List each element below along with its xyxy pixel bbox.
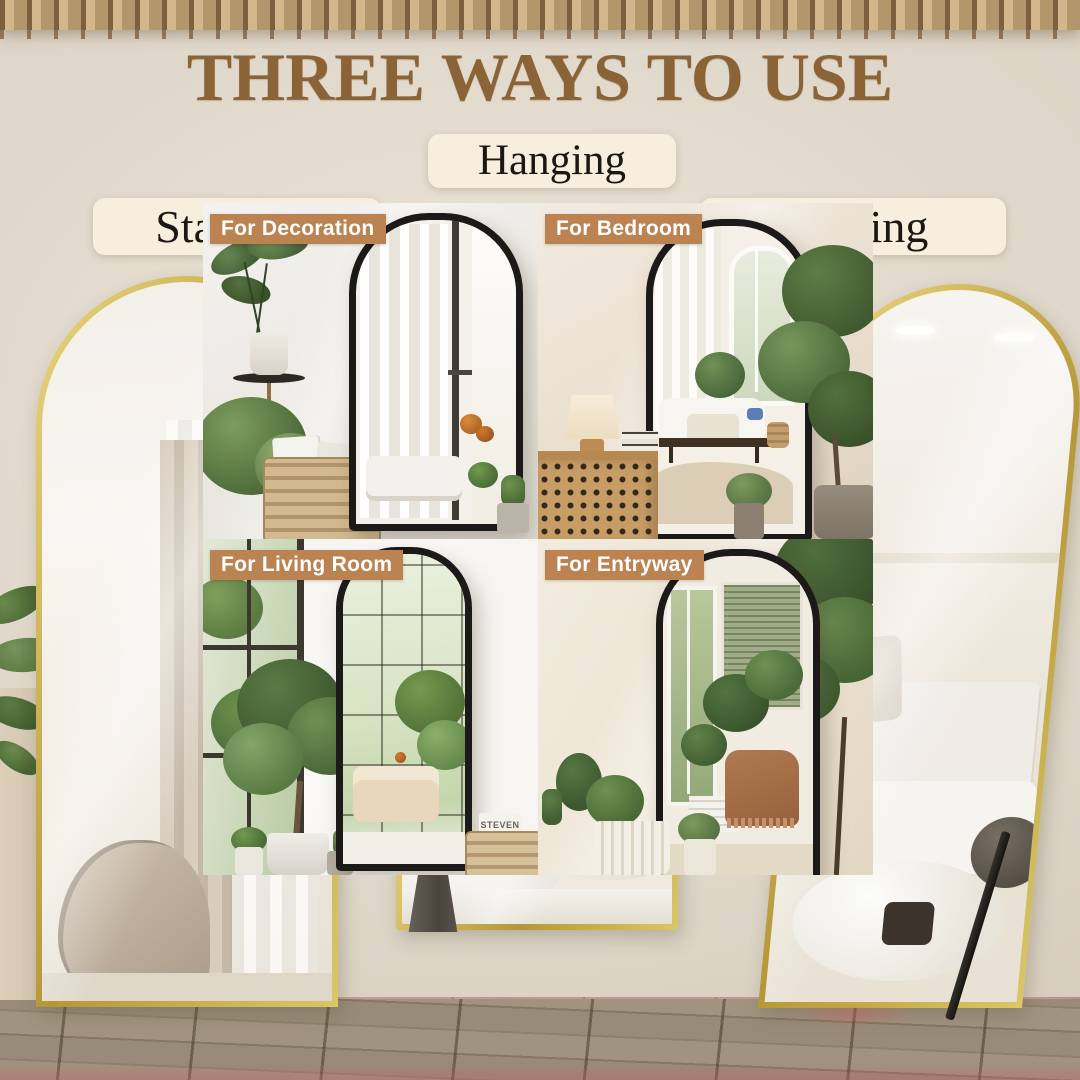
plant-pot (684, 839, 716, 875)
window-mullion (687, 590, 690, 794)
wood-slat-decoration (0, 0, 1080, 30)
tile-label: For Decoration (210, 214, 386, 244)
ottoman-reflection (353, 766, 439, 822)
tile-for-entryway: For Entryway (538, 539, 873, 875)
blanket-fringe (727, 818, 797, 828)
page-title: THREE WAYS TO USE (0, 42, 1080, 113)
bench-leg-reflection (669, 447, 673, 463)
tile-for-bedroom: For Bedroom (538, 203, 873, 539)
fluted-planter (594, 821, 670, 875)
tile-for-living-room: STEVEN For Living Room (203, 539, 538, 875)
tree-outside-window (203, 577, 263, 639)
book-stack (622, 431, 658, 451)
plant-foliage (223, 723, 303, 795)
palm-reflection (417, 720, 472, 770)
plant-foliage (586, 775, 644, 827)
plant-pot (814, 485, 873, 539)
plant-reflection (468, 462, 498, 488)
badge-hanging: Hanging (428, 134, 676, 188)
flower-reflection (476, 426, 494, 442)
tile-label: For Living Room (210, 550, 403, 580)
tile-for-decoration: For Decoration (203, 203, 538, 539)
wicker-basket (465, 831, 538, 875)
cactus-pot (497, 503, 529, 533)
throw-blanket-reflection (725, 750, 799, 826)
bench-reflection (366, 456, 462, 496)
rattan-nightstand (538, 451, 658, 539)
rug-tint (768, 1000, 938, 1030)
plant-pot (250, 331, 288, 375)
table-lamp-shade (564, 395, 620, 439)
product-infographic: THREE WAYS TO USE Standing Hanging Leani… (0, 0, 1080, 1080)
arched-mirror-graphic (349, 213, 523, 531)
floor-reflection (343, 832, 465, 864)
plant-reflection (695, 352, 745, 398)
plant-pot (235, 847, 263, 875)
rug-reflection (653, 462, 793, 524)
palm-reflection (681, 724, 727, 766)
plant-pot (734, 503, 764, 539)
palm-reflection (745, 650, 803, 700)
tile-label: For Bedroom (545, 214, 702, 244)
cactus-graphic (542, 789, 562, 825)
blue-pillow-reflection (747, 408, 763, 420)
round-basket-reflection (767, 422, 789, 448)
usage-photo-grid: For Decoration (203, 203, 873, 875)
fruit-reflection (395, 752, 406, 763)
tile-label: For Entryway (545, 550, 704, 580)
bed-bench-reflection (659, 438, 771, 447)
bench-leg-reflection (755, 447, 759, 463)
window-mullion (755, 250, 758, 392)
arched-mirror-graphic (336, 547, 472, 871)
plant-pot (267, 833, 329, 875)
